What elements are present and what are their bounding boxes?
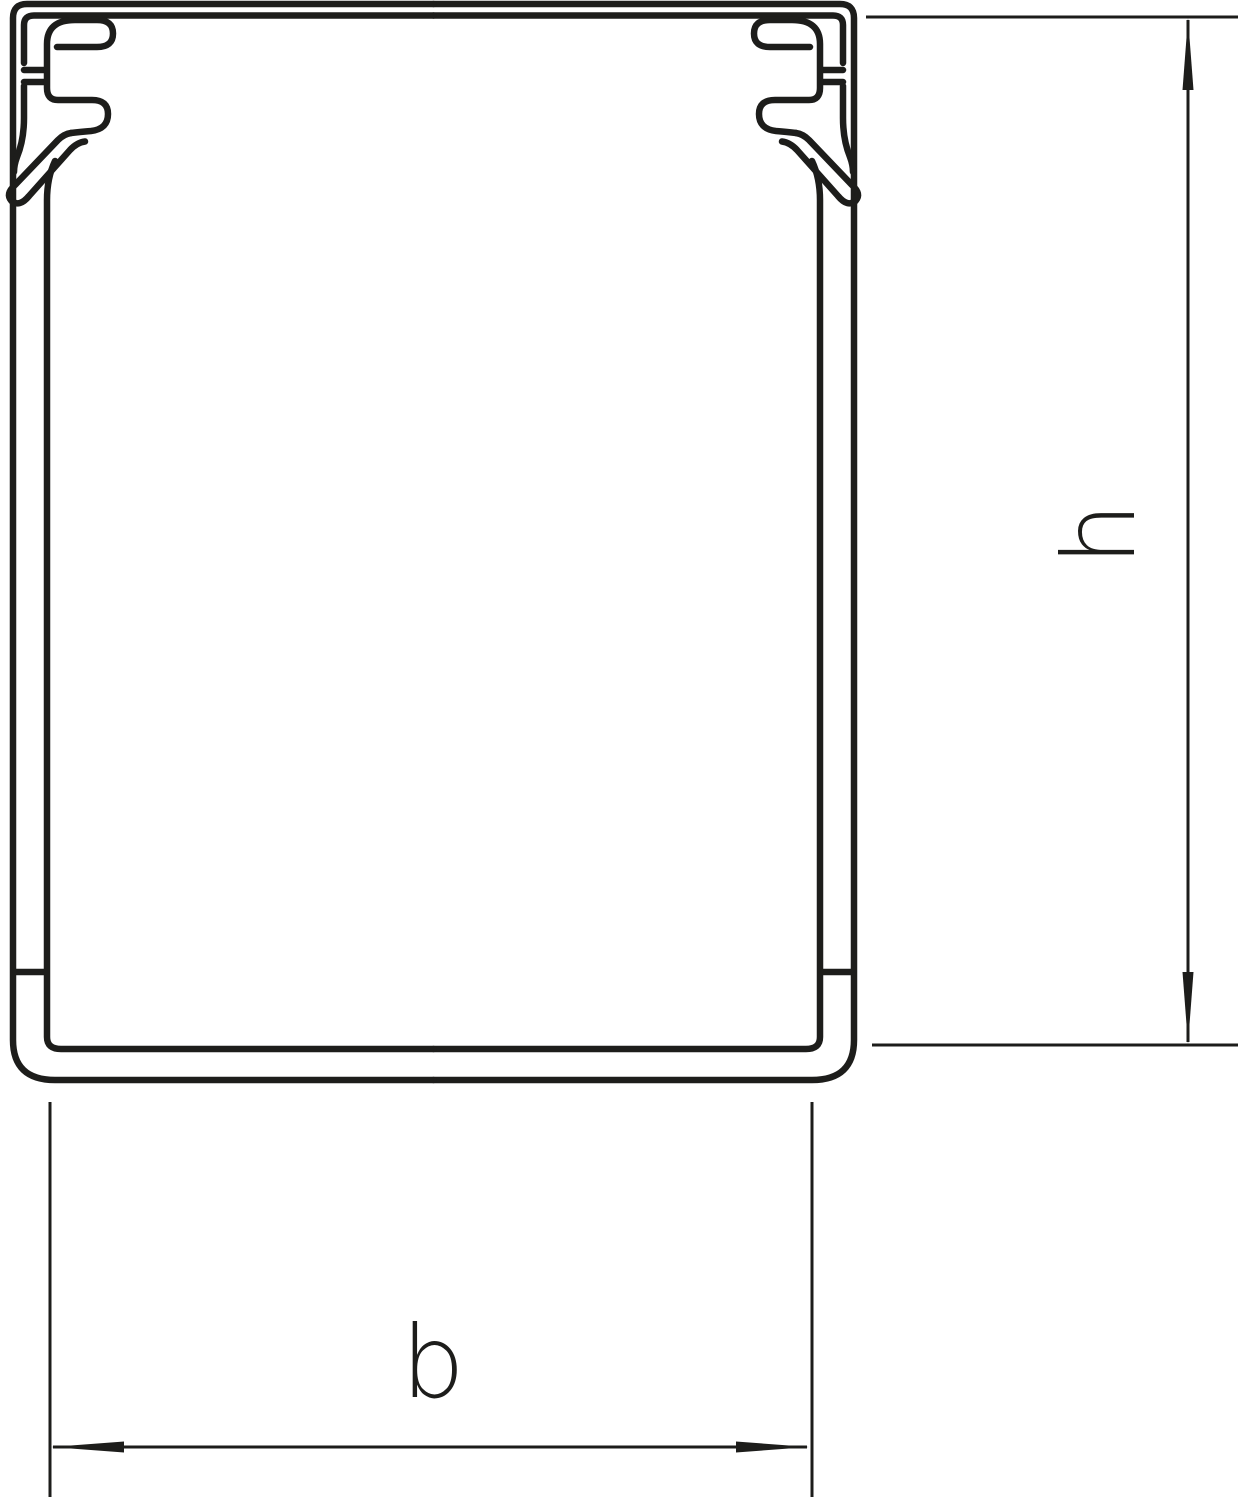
duct-profile-right-half	[434, 4, 859, 1080]
drawing-svg: h b	[0, 0, 1241, 1500]
width-dimension-label: b	[401, 1304, 464, 1421]
arrowhead-up-icon	[1183, 18, 1194, 90]
arrowhead-left-icon	[51, 1442, 124, 1453]
arrowhead-right-icon	[736, 1442, 809, 1453]
height-dimension-label: h	[1041, 502, 1158, 565]
duct-profile	[9, 4, 858, 1080]
duct-cross-section-drawing: h b	[0, 0, 1241, 1500]
duct-profile-left-half	[9, 4, 434, 1080]
width-dimension	[50, 1102, 812, 1497]
arrowhead-down-icon	[1183, 972, 1194, 1044]
